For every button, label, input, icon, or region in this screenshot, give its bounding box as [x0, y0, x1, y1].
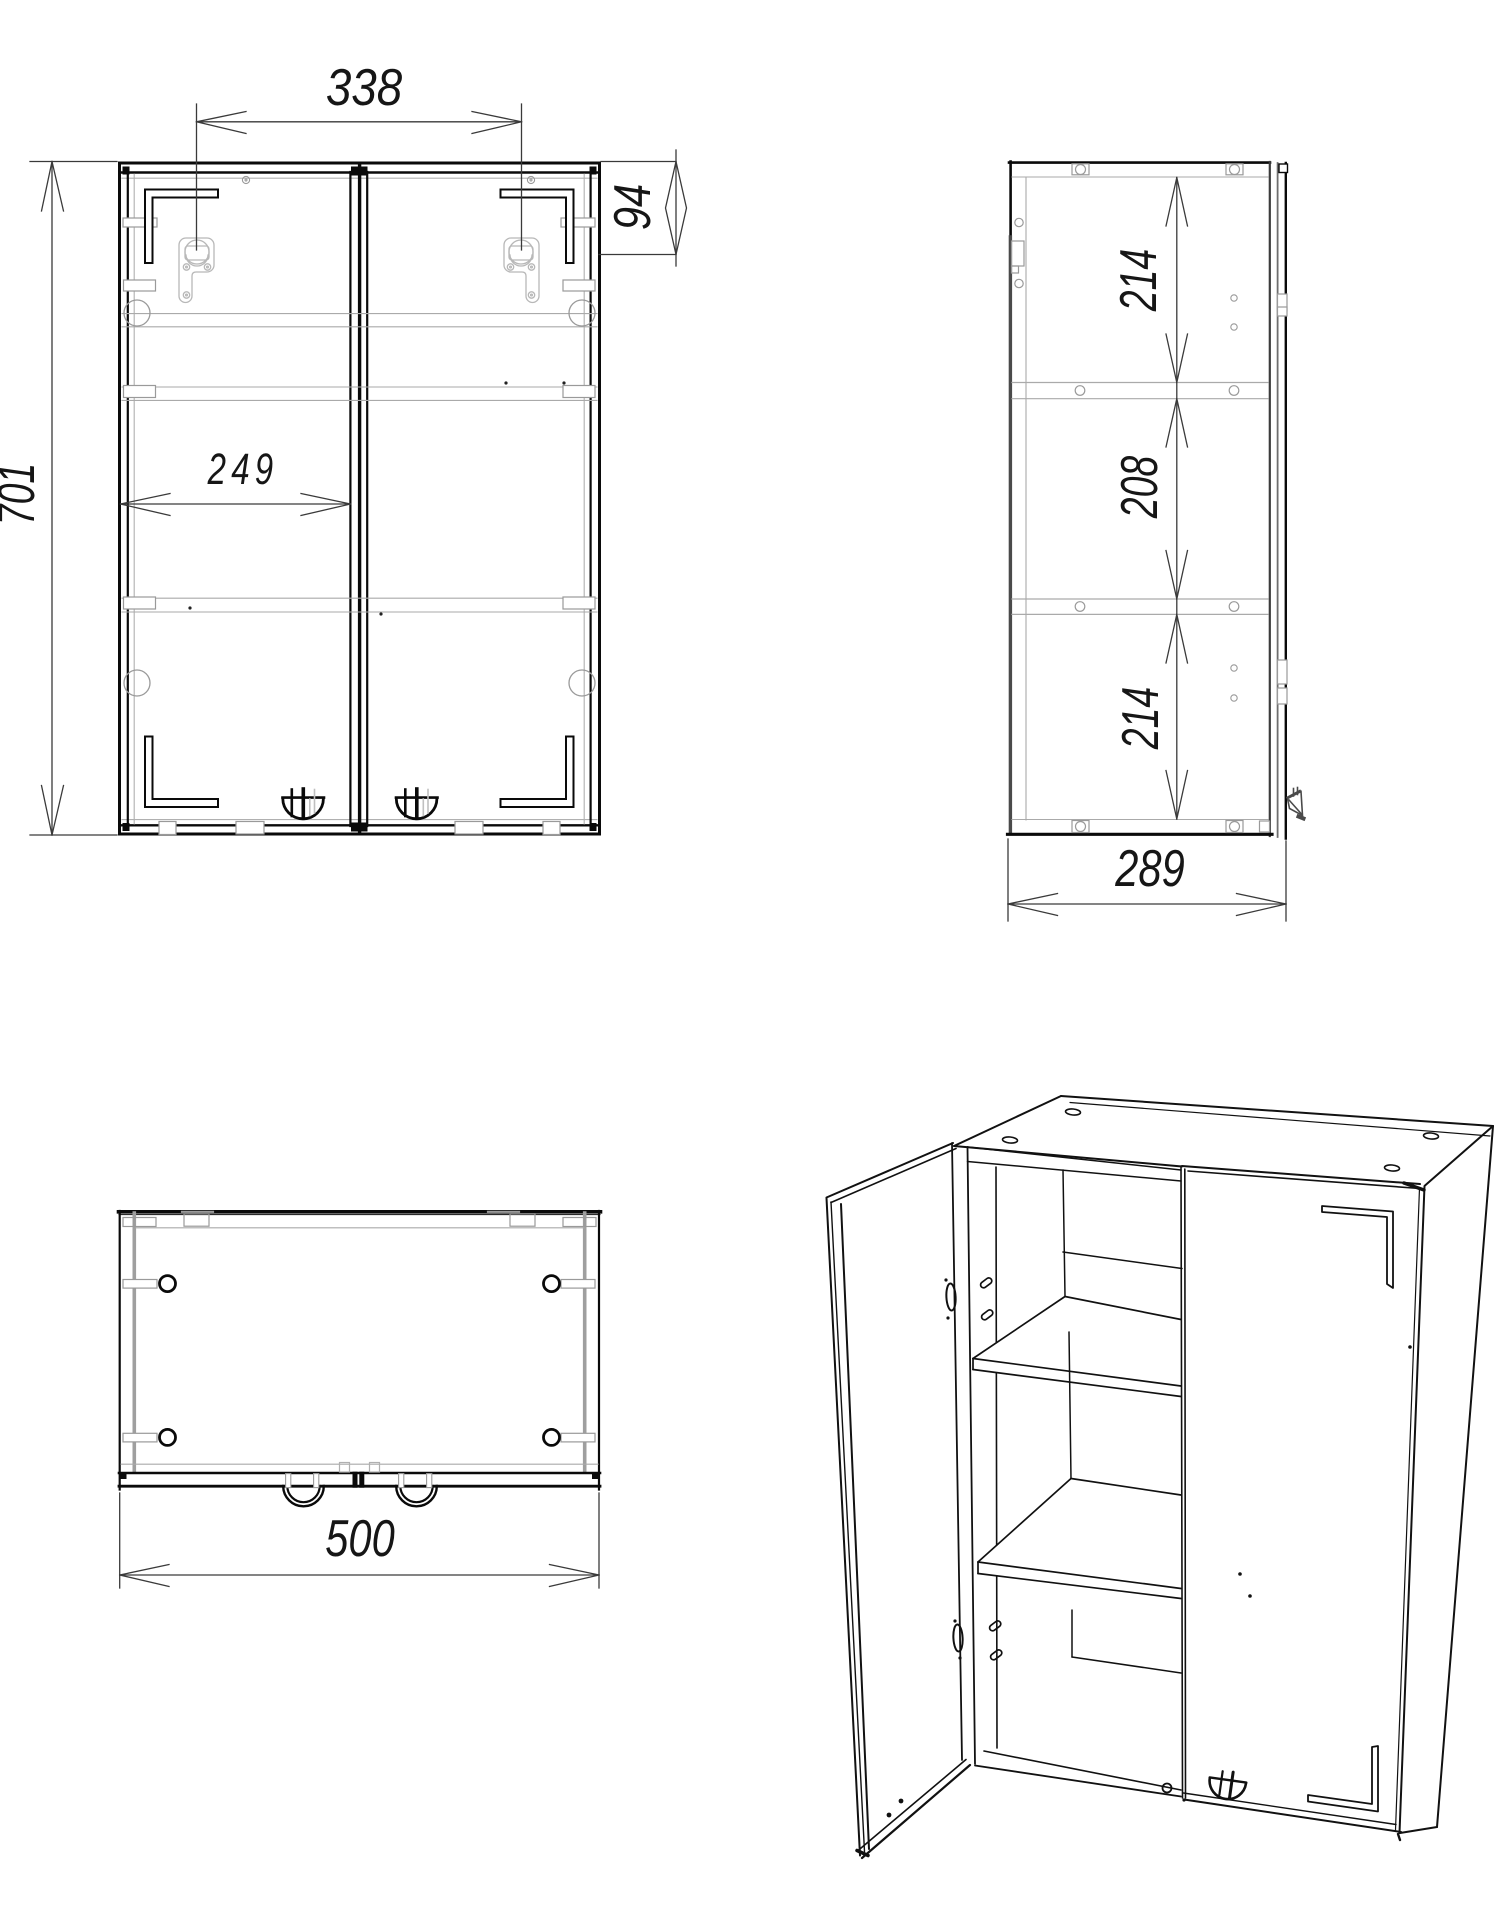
svg-text:500: 500 [325, 1510, 394, 1568]
svg-text:208: 208 [1111, 456, 1169, 519]
svg-text:249: 249 [207, 445, 279, 494]
svg-text:701: 701 [0, 463, 46, 525]
svg-text:214: 214 [1110, 249, 1168, 312]
svg-text:214: 214 [1112, 687, 1170, 750]
svg-text:94: 94 [604, 184, 662, 230]
svg-text:289: 289 [1114, 840, 1184, 898]
svg-text:338: 338 [326, 59, 402, 117]
